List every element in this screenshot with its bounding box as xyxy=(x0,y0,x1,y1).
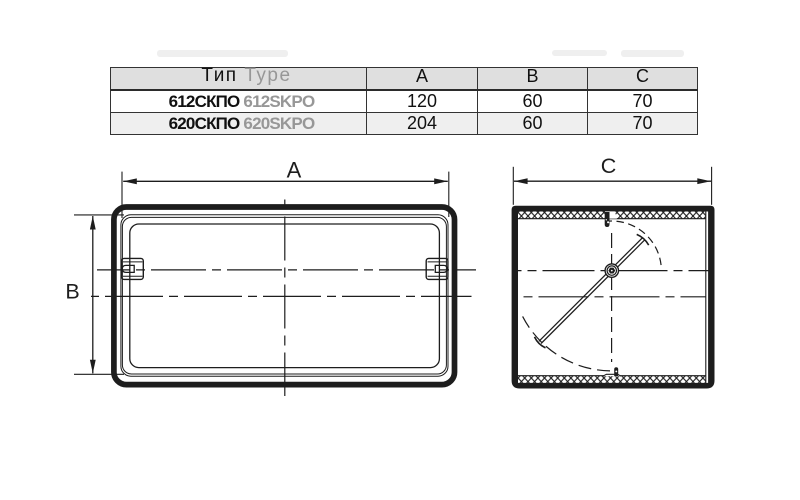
svg-text:B: B xyxy=(65,280,79,304)
svg-text:A: A xyxy=(287,158,302,183)
svg-text:C: C xyxy=(601,154,617,178)
